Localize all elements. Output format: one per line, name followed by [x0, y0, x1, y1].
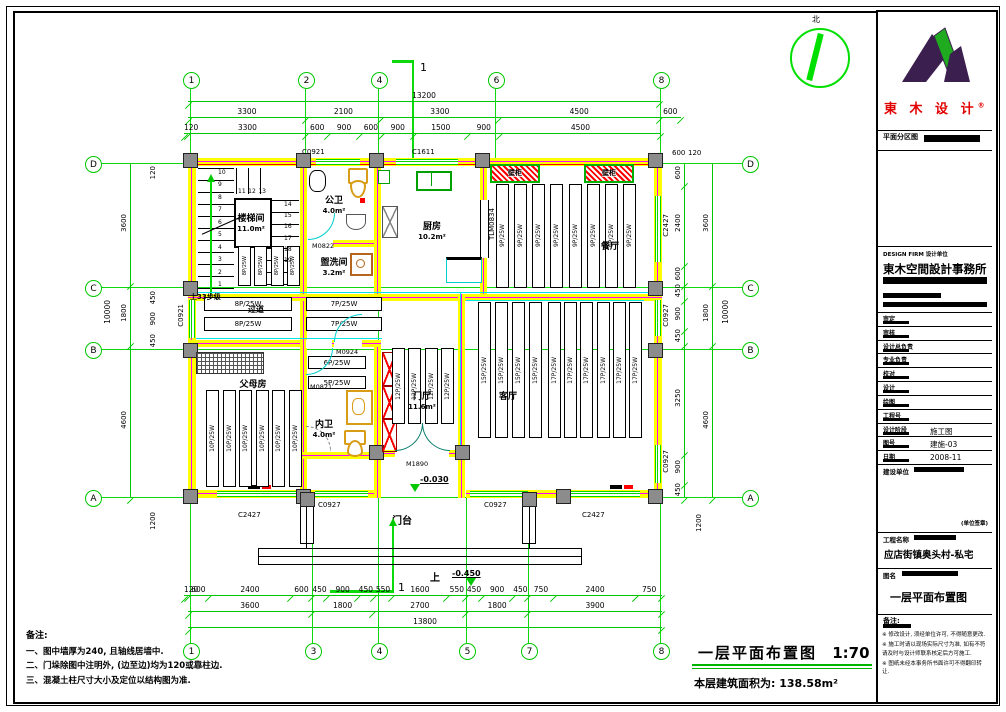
- dim-label: 1800: [120, 304, 128, 322]
- window-label: C1611: [412, 149, 435, 156]
- stair-numbers-top: 111213: [238, 188, 266, 195]
- dim-row-top-3: 120330060090060090015009004500: [184, 122, 661, 134]
- vanity-bowl-icon: [352, 398, 365, 415]
- stair-num: 1: [218, 282, 226, 288]
- room-label-living: 客厅: [490, 392, 526, 403]
- dim-row-top-total: 13200: [188, 90, 660, 102]
- dim-label: 600: [188, 585, 209, 596]
- dim-label: 3600: [702, 214, 710, 232]
- north-label: 北: [812, 16, 820, 24]
- dim-label: 900: [382, 123, 414, 134]
- column: [183, 489, 198, 504]
- dim-label: 600: [291, 585, 312, 596]
- room-label-wc: 内卫 4.0m²: [306, 420, 342, 439]
- grid-bubble-bottom-5: 5: [459, 643, 476, 660]
- radiator-strip: 17P/25W: [613, 302, 626, 438]
- titleblock-row: 工程号: [878, 409, 992, 423]
- radiator-strip: 8P/25W: [254, 246, 267, 286]
- titleblock-row: 校对: [878, 367, 992, 381]
- window-c0921-left: [189, 300, 195, 338]
- window-label: C2427: [663, 214, 670, 237]
- porch-step-end: [258, 548, 259, 565]
- radiator-strip: 17P/25W: [580, 302, 593, 438]
- door-label: M0924: [336, 349, 358, 356]
- radiator-label: 17P/25W: [616, 357, 623, 384]
- radiator-strip: 10P/25W: [206, 390, 219, 487]
- column: [648, 343, 663, 358]
- radiator-strips-living-15p: 15P/25W15P/25W15P/25W15P/25W: [478, 302, 542, 438]
- dim-label: 3600: [188, 601, 312, 612]
- radiator-strip: 15P/25W: [529, 302, 542, 438]
- dim-label-left-450b: 450: [150, 334, 157, 347]
- dim-seg: 450: [672, 283, 685, 298]
- project-name: 应店街镇奥头村-私宅: [884, 547, 973, 561]
- grid-bubble-right-A: A: [742, 490, 759, 507]
- dim-label: 900: [674, 460, 682, 473]
- column: [183, 153, 198, 168]
- cad-sheet: 北 1 2 4 6 8 1 3 4 5 7 8 D C B A D C B A …: [0, 0, 1006, 712]
- radiator-label: 8P/25W: [274, 256, 280, 275]
- note-item: 二、门垛除图中注明外, (边至边)均为120或靠柱边.: [26, 659, 326, 673]
- room-name: 厨房: [423, 222, 441, 232]
- titleblock-row: 绘图: [878, 395, 992, 409]
- sheetname-box: 图名 一层平面布置图: [878, 568, 992, 615]
- stair-up-arrow-line: [210, 182, 212, 294]
- stair-numbers-left: 10987654321: [218, 170, 226, 288]
- drawing-title-text: 一层平面布置图: [698, 644, 817, 662]
- dim-label: 600: [674, 267, 682, 280]
- room-area: 11.0m²: [234, 225, 268, 233]
- window-c0927-bottom2: [470, 491, 528, 497]
- dim-seg: 4600: [118, 343, 131, 497]
- cabinet-label: 壁柜: [602, 170, 616, 177]
- radiator-label: 8P/25W: [242, 256, 248, 275]
- dim-label: 1800: [466, 601, 528, 612]
- radiator-strips-living-17p: 17P/25W17P/25W17P/25W17P/25W17P/25W17P/2…: [548, 302, 642, 438]
- dim-label: 750: [636, 585, 662, 596]
- firm-brand-mark: ®: [978, 102, 985, 110]
- stair-treads-left: [198, 168, 234, 290]
- radiator-strip: 12P/25W: [408, 348, 421, 424]
- radiator-label: 17P/25W: [551, 357, 558, 384]
- column: [648, 281, 663, 296]
- wall-recess-left: [374, 458, 381, 498]
- window-label: C2427: [582, 512, 605, 519]
- dim-seg: 3250: [672, 343, 685, 452]
- dim-label-right-600: 600: [672, 150, 685, 157]
- room-label-parents: 父母房: [230, 380, 276, 391]
- dim-col-left-mid: 360018004600: [118, 163, 131, 497]
- door-gap-m0821: [306, 340, 332, 348]
- sill-hatch-red: [624, 485, 633, 489]
- level-entry: -0.030: [420, 476, 449, 484]
- dim-seg: 1800: [700, 283, 713, 343]
- stair-num: 2: [218, 270, 226, 276]
- remark-item: ※ 施工时请以现场实际尺寸为准, 如有不符请及时与设计师联系核定后方可施工.: [882, 641, 986, 658]
- dim-label: 3600: [120, 214, 128, 232]
- radiator-strip: 12P/25W: [441, 348, 454, 424]
- radiator-strip: 9P/25W: [605, 184, 618, 288]
- firm-name: 東木空間設計事務所: [883, 261, 987, 277]
- remark-item: ※ 修改设计, 须经单位许可, 不得随意更改.: [882, 631, 986, 639]
- dim-label: 600: [360, 123, 381, 134]
- general-notes: 备注: 一、图中墙厚为240, 且轴线居墙中.二、门垛除图中注明外, (边至边)…: [26, 628, 326, 688]
- heating-manifold-grille: [196, 352, 264, 374]
- dim-label-left-total: 10000: [104, 300, 112, 324]
- window-label: C0921: [178, 304, 185, 327]
- room-label-stair: 楼梯间 11.0m²: [234, 214, 268, 233]
- grid-bubble-right-B: B: [742, 342, 759, 359]
- sill-hatch: [610, 485, 622, 489]
- radiator-label: 10P/25W: [226, 425, 233, 452]
- titleblock-row: 日期 2008-11: [878, 450, 992, 464]
- dim-label: 1500: [414, 123, 468, 134]
- dim-label-left-900: 900: [150, 312, 157, 325]
- porch-step: [258, 556, 582, 557]
- radiator-strip: 12P/25W: [425, 348, 438, 424]
- stair-num: 8: [218, 195, 226, 201]
- radiator-strip: 9P/25W: [587, 184, 600, 288]
- firm-en: DESIGN FIRM 设计单位: [883, 250, 948, 258]
- cabinet-label: 壁柜: [508, 170, 522, 177]
- window-c0927-right1: [655, 300, 661, 336]
- titleblock-row: 图号 建施-03: [878, 436, 992, 450]
- kitchen-sink-divider: [431, 172, 432, 186]
- dim-label-right-total: 10000: [722, 300, 730, 324]
- section-label-top: 1: [420, 62, 427, 73]
- stair-num: 14: [284, 202, 292, 208]
- room-area: 10.2m²: [412, 233, 452, 241]
- room-name: 公卫: [325, 196, 343, 206]
- room-label-kitchen: 厨房 10.2m²: [412, 222, 452, 241]
- radiator-strip: 10P/25W: [239, 390, 252, 487]
- note-item: 三、混凝土柱尺寸大小及定位以结构图为准.: [26, 674, 326, 688]
- client-box: 建设单位 (单位签章): [878, 464, 992, 533]
- dim-label: 2400: [674, 214, 682, 232]
- room-area: 3.2m²: [312, 269, 356, 277]
- room-label-dining: 餐厅: [592, 242, 628, 253]
- dim-label: 450: [674, 483, 682, 496]
- title-underline: [692, 664, 872, 666]
- dim-label: 600: [674, 166, 682, 179]
- dim-seg: 900: [672, 298, 685, 328]
- dim-label-right-120: 120: [688, 150, 701, 157]
- stair-num: 9: [218, 182, 226, 188]
- radiator-strip: 17P/25W: [548, 302, 561, 438]
- radiator-strip: 9P/25W: [532, 184, 545, 288]
- door-label: TLM0834: [489, 208, 496, 240]
- porch-pillar: [300, 502, 314, 544]
- window-c0927-right2: [655, 445, 661, 483]
- dim-seg: 450: [672, 328, 685, 343]
- notes-heading: 备注:: [26, 628, 326, 641]
- window-c0927-bottom1: [315, 491, 368, 497]
- porch-edge: [306, 500, 307, 548]
- dim-seg: 600: [672, 163, 685, 183]
- dim-label-left-450a: 450: [150, 291, 157, 304]
- section-arrowhead: [389, 518, 397, 526]
- dim-seg: 4600: [700, 343, 713, 497]
- dim-label: 1800: [702, 304, 710, 322]
- titleblock-row: 专业负责: [878, 353, 992, 367]
- stair-num: 17: [284, 236, 292, 242]
- window-label: C2427: [238, 512, 261, 519]
- remark-box: 备注: ※ 修改设计, 须经单位许可, 不得随意更改.※ 施工时请以现场实际尺寸…: [878, 614, 992, 699]
- dim-label: 3250: [674, 389, 682, 407]
- pipe-line: [460, 292, 461, 450]
- radiator: 8P/25W: [204, 317, 292, 331]
- radiator-strip: 17P/25W: [629, 302, 642, 438]
- radiator-label: 12P/25W: [444, 373, 451, 400]
- notes-list: 一、图中墙厚为240, 且轴线居墙中.二、门垛除图中注明外, (边至边)均为12…: [26, 645, 326, 688]
- radiator-label: 10P/25W: [209, 425, 216, 452]
- wall-stair-pubwc: [300, 166, 307, 294]
- dim-label: 750: [528, 585, 554, 596]
- radiator-label: 17P/25W: [632, 357, 639, 384]
- radiator-label: 17P/25W: [583, 357, 590, 384]
- radiator-strip: 9P/25W: [623, 184, 636, 288]
- dim-seg: 3600: [700, 163, 713, 283]
- radiator-label: 8P/25W: [258, 256, 264, 275]
- stair-up-note: 上33步级: [190, 294, 221, 301]
- porch-step: [258, 564, 582, 565]
- dim-label: 900: [468, 123, 500, 134]
- dim-label: 2700: [373, 601, 466, 612]
- grid-bubble-bottom-8: 8: [653, 643, 670, 660]
- radiator-label: 10P/25W: [242, 425, 249, 452]
- window-c0921-top: [316, 159, 360, 165]
- room-label-hall: 过道: [240, 305, 272, 315]
- sheet-name: 一层平面布置图: [890, 589, 967, 605]
- sheetname-label: 图名: [883, 570, 896, 580]
- dim-label: 600: [306, 123, 327, 134]
- door-label: M1890: [406, 461, 428, 468]
- radiator-label: 10P/25W: [259, 425, 266, 452]
- title-underline2: [692, 668, 872, 669]
- room-label-laundry: 盥洗间 3.2m²: [312, 258, 356, 277]
- zone-row: 平面分区图: [878, 130, 992, 151]
- stair-num: 16: [284, 224, 292, 230]
- section-tick-top: [392, 60, 414, 63]
- stair-num: 11: [238, 188, 246, 195]
- dim-label: 1800: [312, 601, 374, 612]
- radiator-label: 15P/25W: [515, 357, 522, 384]
- dim-label: 1600: [392, 585, 447, 596]
- client-note: (单位签章): [961, 519, 988, 527]
- window-c2427-right: [655, 196, 661, 262]
- radiator-label: 17P/25W: [567, 357, 574, 384]
- radiator-label: 9P/25W: [517, 224, 524, 247]
- stair-num: 7: [218, 207, 226, 213]
- radiator-strip: 15P/25W: [495, 302, 508, 438]
- dim-label: 550: [374, 585, 393, 596]
- radiator-label: 15P/25W: [498, 357, 505, 384]
- column: [369, 153, 384, 168]
- porch-edge: [529, 500, 530, 548]
- project-box: 工程名称 应店街镇奥头村-私宅: [878, 532, 992, 569]
- spacer-box: [878, 150, 992, 247]
- up-label: 上: [430, 574, 440, 584]
- dim-label: 2400: [209, 585, 291, 596]
- door-label: M0822: [312, 243, 334, 250]
- dim-label: 900: [328, 123, 360, 134]
- radiator-strips-parents: 10P/25W10P/25W10P/25W10P/25W10P/25W10P/2…: [206, 390, 302, 487]
- wall-wc-foyer: [374, 347, 381, 458]
- title-block: 東 木 设 计® 平面分区图 DESIGN FIRM 设计单位 東木空間設計事務…: [876, 10, 998, 704]
- dim-label: 450: [358, 585, 373, 596]
- window-c1611: [396, 159, 458, 165]
- dim-row-bottom-2: 36001800270018003900: [188, 600, 662, 612]
- window-c2427-bottom1: [217, 491, 305, 497]
- radiator-strips-dining: 9P/25W9P/25W9P/25W9P/25W9P/25W9P/25W9P/2…: [496, 184, 636, 288]
- window-label: C0927: [663, 304, 670, 327]
- sink-icon: [346, 214, 366, 230]
- porch-step-end: [581, 548, 582, 565]
- dim-label: 450: [312, 585, 327, 596]
- dim-label: 900: [327, 585, 358, 596]
- dim-label: 900: [482, 585, 513, 596]
- remark-list: ※ 修改设计, 须经单位许可, 不得随意更改.※ 施工时请以现场实际尺寸为准, …: [878, 629, 990, 676]
- washbasin-icon: [309, 170, 326, 192]
- note-item: 一、图中墙厚为240, 且轴线居墙中.: [26, 645, 326, 659]
- room-name: 客厅: [499, 392, 517, 402]
- row-value: 2008-11: [930, 453, 961, 462]
- stair-num: 13: [258, 188, 266, 195]
- dim-label: 2400: [554, 585, 636, 596]
- level-porch: -0.450: [452, 570, 481, 578]
- radiator-strip: 10P/25W: [223, 390, 236, 487]
- radiator-strip: 17P/25W: [597, 302, 610, 438]
- grid-bubble-top-8: 8: [653, 72, 670, 89]
- dim-label: 450: [674, 284, 682, 297]
- radiator-strip: 12P/25W: [392, 348, 405, 424]
- radiator-strip: 9P/25W: [496, 184, 509, 288]
- porch-step: [258, 548, 582, 549]
- radiator-strip: 17P/25W: [564, 302, 577, 438]
- grid-bubble-left-A: A: [85, 490, 102, 507]
- radiator-strip: 9P/25W: [569, 184, 582, 288]
- stair-num: 10: [218, 170, 226, 176]
- stair-up-arrowhead: [207, 174, 215, 182]
- dim-row-bottom-total: 13800: [188, 616, 662, 628]
- pipe-line: [466, 300, 644, 301]
- dim-label: 3300: [381, 107, 499, 118]
- firm-logo-icon: [898, 24, 974, 90]
- room-name: 门厅: [413, 392, 431, 402]
- radiator-strips-foyer: 12P/25W12P/25W12P/25W12P/25W: [392, 348, 454, 424]
- room-label-porch: 门台: [380, 516, 424, 528]
- grid-bubble-left-C: C: [85, 280, 102, 297]
- dim-label: 4500: [499, 107, 660, 118]
- remark-item: ※ 图纸未经本事务所书面许可不得翻印转让.: [882, 660, 986, 677]
- firm-box: DESIGN FIRM 设计单位 東木空間設計事務所: [878, 246, 992, 313]
- column: [556, 489, 571, 504]
- grid-bubble-right-C: C: [742, 280, 759, 297]
- grid-bubble-left-B: B: [85, 342, 102, 359]
- room-name: 内卫: [315, 420, 333, 430]
- radiator-label: 10P/25W: [275, 425, 282, 452]
- dim-col-right-inner: 60024006004509004503250900450: [672, 163, 685, 497]
- radiator-label: 9P/25W: [572, 224, 579, 247]
- stair-numbers-right: 141516171819: [284, 202, 292, 264]
- firm-brand-text: 東 木 设 计: [884, 102, 978, 117]
- project-label: 工程名称: [883, 534, 909, 544]
- dim-label: 4600: [702, 411, 710, 429]
- radiator-strip: 10P/25W: [256, 390, 269, 487]
- radiator-label: 15P/25W: [481, 357, 488, 384]
- titleblock-row: 设计: [878, 381, 992, 395]
- radiator-label: 9P/25W: [499, 224, 506, 247]
- radiator: 7P/25W: [306, 297, 382, 311]
- stove-icon: [382, 206, 398, 238]
- client-label: 建设单位: [883, 466, 909, 476]
- dim-seg: 2400: [672, 183, 685, 263]
- radiator-label: 9P/25W: [535, 224, 542, 247]
- zone-label: 平面分区图: [883, 132, 918, 142]
- column: [475, 153, 490, 168]
- row-value: 建施-03: [930, 439, 957, 450]
- dim-label: 13800: [188, 617, 662, 628]
- dim-label: 4500: [500, 123, 661, 134]
- dim-seg: 600: [672, 263, 685, 283]
- radiator-strip: 9P/25W: [550, 184, 563, 288]
- dim-label: 4600: [120, 411, 128, 429]
- dim-label: 3300: [188, 123, 306, 134]
- dim-label-left-120: 120: [150, 166, 157, 179]
- room-name: 盥洗间: [320, 258, 347, 268]
- radiator-label: 9P/25W: [553, 224, 560, 247]
- room-name: 餐厅: [601, 242, 619, 252]
- pipe-line: [196, 292, 654, 293]
- stair-num: 18: [284, 247, 292, 253]
- dim-label: 13200: [188, 91, 660, 102]
- dim-label: 3300: [188, 107, 306, 118]
- radiator-label: 15P/25W: [532, 357, 539, 384]
- radiator-strip: 15P/25W: [478, 302, 491, 438]
- stair-num: 12: [248, 188, 256, 195]
- radiator-strip: 10P/25W: [272, 390, 285, 487]
- radiator-strip: 9P/25W: [514, 184, 527, 288]
- radiator-strip: 15P/25W: [512, 302, 525, 438]
- level-triangle-icon: [466, 578, 476, 586]
- dim-label-right-1200: 1200: [696, 514, 703, 532]
- column-porch: [522, 492, 537, 507]
- red-marker: [360, 198, 365, 203]
- room-area: 11.6m²: [400, 403, 444, 411]
- cabinet-box: 壁柜: [584, 164, 634, 183]
- drawing-scale: 1:70: [832, 644, 869, 662]
- dim-label: 450: [674, 329, 682, 342]
- dim-label: 550: [447, 585, 466, 596]
- window-label: C0927: [484, 502, 507, 509]
- column: [455, 445, 470, 460]
- dim-seg: 900: [672, 452, 685, 482]
- dim-label: 600: [660, 107, 681, 118]
- counter-icon: [446, 257, 482, 283]
- room-name: 过道: [248, 305, 264, 314]
- radiator-strip: 8P/25W: [271, 246, 284, 286]
- dim-row-bottom-1: 1206002400600450900450550160055045090045…: [184, 584, 662, 596]
- room-label-pubwc: 公卫 4.0m²: [316, 196, 352, 215]
- cabinet-box: 壁柜: [490, 164, 540, 183]
- column: [648, 489, 663, 504]
- kitchen-sink-icon: [416, 171, 452, 191]
- room-name: 楼梯间: [237, 214, 264, 224]
- dim-label: 450: [466, 585, 481, 596]
- floor-area-note: 本层建筑面积为: 138.58m²: [694, 675, 838, 691]
- grid-bubble-bottom-4: 4: [371, 643, 388, 660]
- kitchen-cabinet-icon: [378, 170, 390, 184]
